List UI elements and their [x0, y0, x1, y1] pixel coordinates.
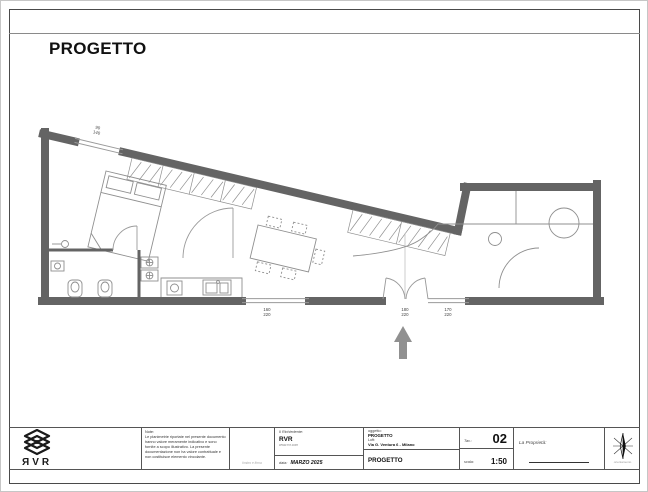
bedroom-door — [183, 208, 233, 258]
scale-value: 1:50 — [491, 457, 507, 466]
toilet — [68, 280, 82, 297]
owner-label: La Proprietà: — [519, 441, 546, 446]
entrance-arrow — [394, 326, 412, 359]
rvr-logo-icon — [22, 429, 52, 456]
stamp-hint: timbro e firma — [242, 461, 261, 465]
kitchen-counter — [161, 278, 242, 297]
dim-window-diag-h: 140 — [93, 129, 102, 136]
dim-window1-h: 220 — [263, 312, 271, 317]
owner-cell: La Proprietà: — [513, 428, 604, 469]
applicant-cell: Il Richiedente: RVR www.rvr.com data: MA… — [274, 428, 363, 469]
date-label: data: — [279, 461, 287, 465]
compass-caption: orientamento — [614, 460, 632, 464]
applicant-website: www.rvr.com — [279, 443, 359, 447]
dim-window2-h: 220 — [444, 312, 452, 317]
sheet-number-cell: Tav.: 02 scala: 1:50 — [459, 428, 513, 469]
compass-icon — [611, 433, 635, 459]
floor-plan: 90 140 160 220 180 220 170 220 — [1, 1, 648, 492]
entry-double-door — [383, 278, 428, 299]
sheet-number-value: 02 — [493, 431, 507, 446]
applicant-name: RVR — [279, 436, 359, 443]
stamp-cell: timbro e firma — [229, 428, 274, 469]
study-area — [353, 191, 593, 288]
drawing-title: PROGETTO — [368, 457, 403, 464]
bidet — [98, 280, 112, 297]
window-diagonal — [75, 138, 124, 153]
compass-cell: orientamento — [604, 428, 640, 469]
drawing-sheet: PROGETTO — [0, 0, 648, 492]
window-bottom-left — [242, 299, 309, 303]
object-address: Via G. Ventura 6 - Milano — [368, 442, 455, 447]
note-text: Le planimetrie riportate nel presente do… — [145, 435, 226, 460]
date-value: MARZO 2025 — [290, 460, 322, 466]
object-cell: oggetto: PROGETTO Loft: Via G. Ventura 6… — [363, 428, 459, 469]
applicant-label: Il Richiedente: — [279, 430, 359, 434]
owner-signature-line — [529, 462, 588, 463]
bathroom-walls — [49, 250, 139, 299]
bathroom-door — [113, 226, 137, 250]
sheet-number-label: Tav.: — [464, 439, 472, 443]
dining-table — [248, 214, 330, 285]
note-cell: Note: Le planimetrie riportate nel prese… — [141, 428, 229, 469]
washbasin — [51, 241, 69, 272]
logo-text: ЯVR — [22, 457, 141, 468]
dim-door-h: 220 — [401, 312, 409, 317]
scale-label: scala: — [464, 460, 474, 464]
laundry-units — [141, 257, 158, 281]
logo-cell: ЯVR — [9, 428, 141, 469]
window-bottom-right — [428, 299, 469, 303]
bed — [88, 171, 166, 261]
title-block: ЯVR Note: Le planimetrie riportate nel p… — [9, 427, 640, 470]
